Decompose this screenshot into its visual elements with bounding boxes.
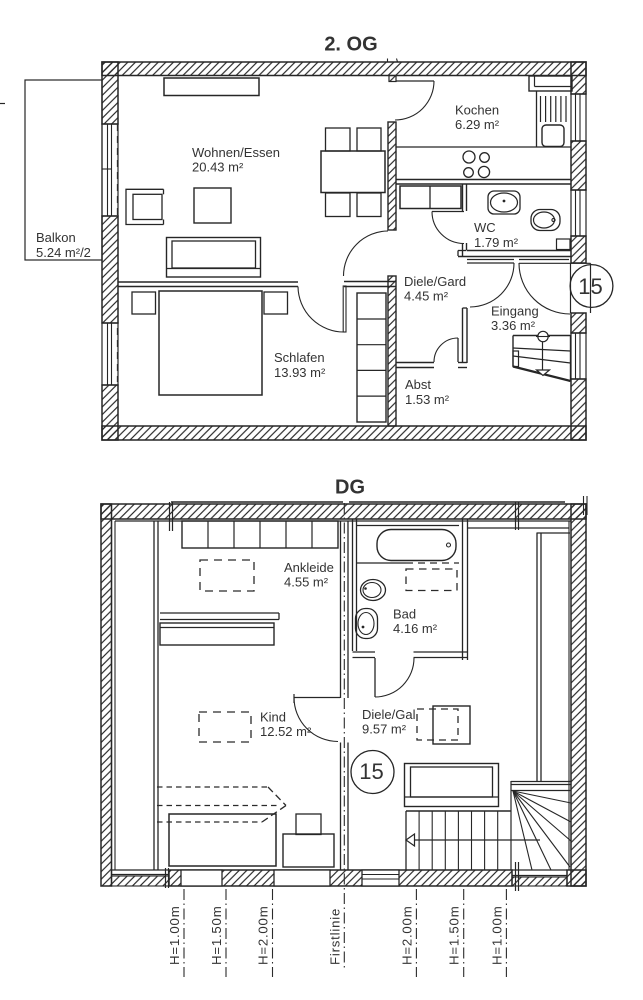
svg-text:6.29 m²: 6.29 m² xyxy=(455,117,500,132)
svg-text:15: 15 xyxy=(578,274,602,299)
svg-text:13.93 m²: 13.93 m² xyxy=(274,365,326,380)
svg-text:Diele/Gard: Diele/Gard xyxy=(404,274,466,289)
svg-text:Ankleide: Ankleide xyxy=(284,560,334,575)
svg-text:Diele/Gal: Diele/Gal xyxy=(362,707,416,722)
svg-text:9.57 m²: 9.57 m² xyxy=(362,722,407,737)
svg-text:Firstlinie: Firstlinie xyxy=(327,908,342,965)
svg-text:H=1.50m: H=1.50m xyxy=(209,906,224,965)
svg-text:2. OG: 2. OG xyxy=(324,34,377,56)
svg-text:Wohnen/Essen: Wohnen/Essen xyxy=(192,145,280,160)
svg-text:H=1.00m: H=1.00m xyxy=(167,906,182,965)
svg-text:15: 15 xyxy=(359,759,383,784)
svg-text:H=2.00m: H=2.00m xyxy=(256,906,271,965)
svg-text:20.43 m²: 20.43 m² xyxy=(192,160,244,175)
svg-text:Abst: Abst xyxy=(405,377,431,392)
svg-text:DG: DG xyxy=(335,477,365,499)
svg-text:1.79 m²: 1.79 m² xyxy=(474,235,519,250)
svg-text:H=2.00m: H=2.00m xyxy=(399,906,414,965)
svg-text:4.55 m²: 4.55 m² xyxy=(284,575,329,590)
svg-text:4.45 m²: 4.45 m² xyxy=(404,289,449,304)
svg-text:H=1.00m: H=1.00m xyxy=(489,906,504,965)
svg-text:H=1.50m: H=1.50m xyxy=(447,906,462,965)
svg-text:Schlafen: Schlafen xyxy=(274,350,325,365)
svg-text:1.53 m²: 1.53 m² xyxy=(405,392,450,407)
svg-text:Kochen: Kochen xyxy=(455,103,499,118)
svg-text:5.24 m²/2: 5.24 m²/2 xyxy=(36,245,91,260)
svg-text:3.36 m²: 3.36 m² xyxy=(491,318,536,333)
svg-text:WC: WC xyxy=(474,220,496,235)
svg-text:Kind: Kind xyxy=(260,710,286,725)
svg-text:Bad: Bad xyxy=(393,607,416,622)
svg-text:Balkon: Balkon xyxy=(36,230,76,245)
svg-text:Eingang: Eingang xyxy=(491,304,539,319)
svg-text:4.16 m²: 4.16 m² xyxy=(393,621,438,636)
